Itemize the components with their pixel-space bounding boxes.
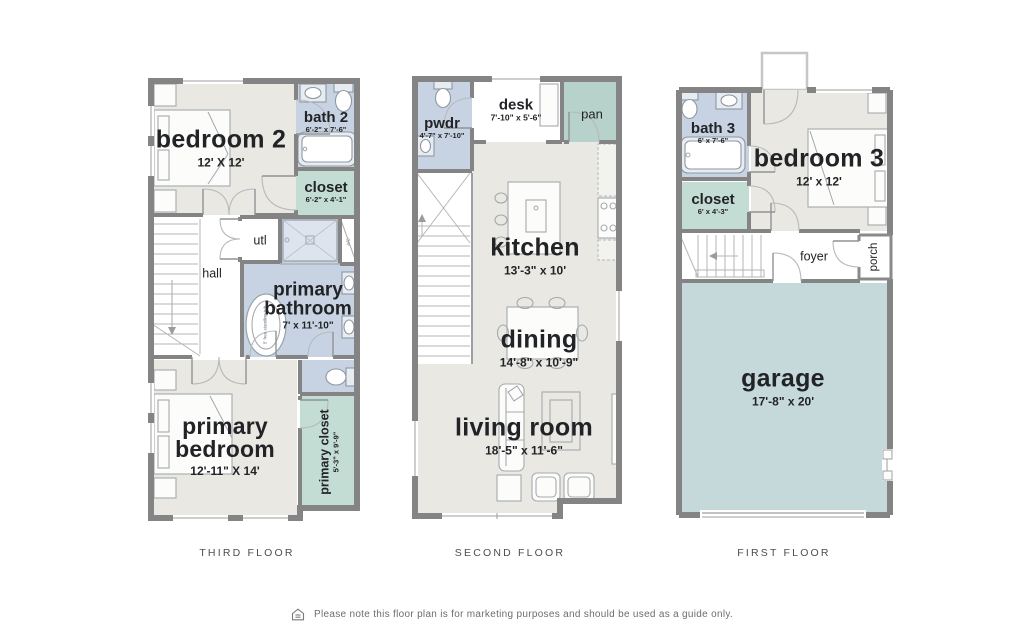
room-label-primary-bedroom: primary bedroom 12'-11" X 14'	[175, 415, 275, 477]
floor-plan-second: pwdr 4'-7" x 7'-10" desk 7'-10" x 5'-6" …	[412, 76, 622, 519]
room-label-pwdr: pwdr 4'-7" x 7'-10"	[420, 116, 465, 140]
room-label-utl: utl	[253, 235, 266, 248]
disclaimer-text: Please note this floor plan is for marke…	[314, 609, 733, 620]
room-label-living: living room 18'-5" x 11'-6"	[455, 416, 593, 457]
room-label-kitchen: kitchen 13'-3" x 10'	[490, 236, 580, 277]
entry-alcove	[762, 53, 807, 90]
stairs-icon	[680, 235, 764, 277]
room-label-closet3: closet 6' x 4'-3"	[691, 192, 734, 216]
stove-counter-icon	[598, 144, 619, 260]
room-label-bedroom2: bedroom 2 12' X 12'	[156, 128, 287, 169]
shower-icon	[283, 220, 337, 261]
coffee-table-icon	[497, 475, 521, 501]
garage-door	[700, 510, 866, 519]
garage-side-door	[882, 449, 894, 481]
windows	[816, 87, 872, 93]
stairwell	[415, 173, 472, 364]
floor-plan-first: bath 3 6' x 7'-6" bedroom 3 12' x 12' cl…	[676, 51, 894, 518]
room-label-pan: pan	[581, 107, 603, 120]
room-label-foyer: foyer	[800, 251, 828, 264]
floor-plan-third: bedroom 2 12' X 12' bath 2 6'-2" x 7'-6"…	[148, 78, 360, 523]
room-label-bath3: bath 3 6' x 7'-6"	[691, 121, 735, 145]
floor-plan-page: bedroom 2 12' X 12' bath 2 6'-2" x 7'-6"…	[0, 0, 1024, 640]
desk-icon	[540, 84, 558, 126]
caption-second-floor: SECOND FLOOR	[455, 547, 565, 559]
room-label-hall: hall	[202, 268, 221, 281]
room-label-closet2: closet 6'-2" x 4'-1"	[304, 180, 347, 204]
room-label-ac: A/C	[347, 238, 352, 246]
caption-third-floor: THIRD FLOOR	[199, 547, 294, 559]
room-label-desk: desk 7'-10" x 5'-6"	[491, 98, 542, 123]
house-icon	[291, 608, 305, 621]
room-label-porch: porch	[869, 243, 881, 272]
room-label-primary-closet: primary closet 5'-3" x 9'-9"	[318, 409, 339, 494]
room-label-primary-bathroom: primary bathroom 7' x 11'-10"	[264, 281, 352, 332]
toilet-icon	[326, 368, 355, 386]
stairs-icon	[152, 219, 200, 356]
room-label-bath2: bath 2 6'-2" x 7'-6"	[304, 110, 348, 134]
room-label-bedroom3: bedroom 3 12' x 12'	[754, 147, 885, 188]
room-label-dining: dining 14'-8" x 10'-9"	[500, 328, 578, 369]
caption-first-floor: FIRST FLOOR	[737, 547, 830, 559]
disclaimer: Please note this floor plan is for marke…	[0, 608, 1024, 621]
room-label-garage: garage 17'-8" x 20'	[741, 367, 825, 408]
